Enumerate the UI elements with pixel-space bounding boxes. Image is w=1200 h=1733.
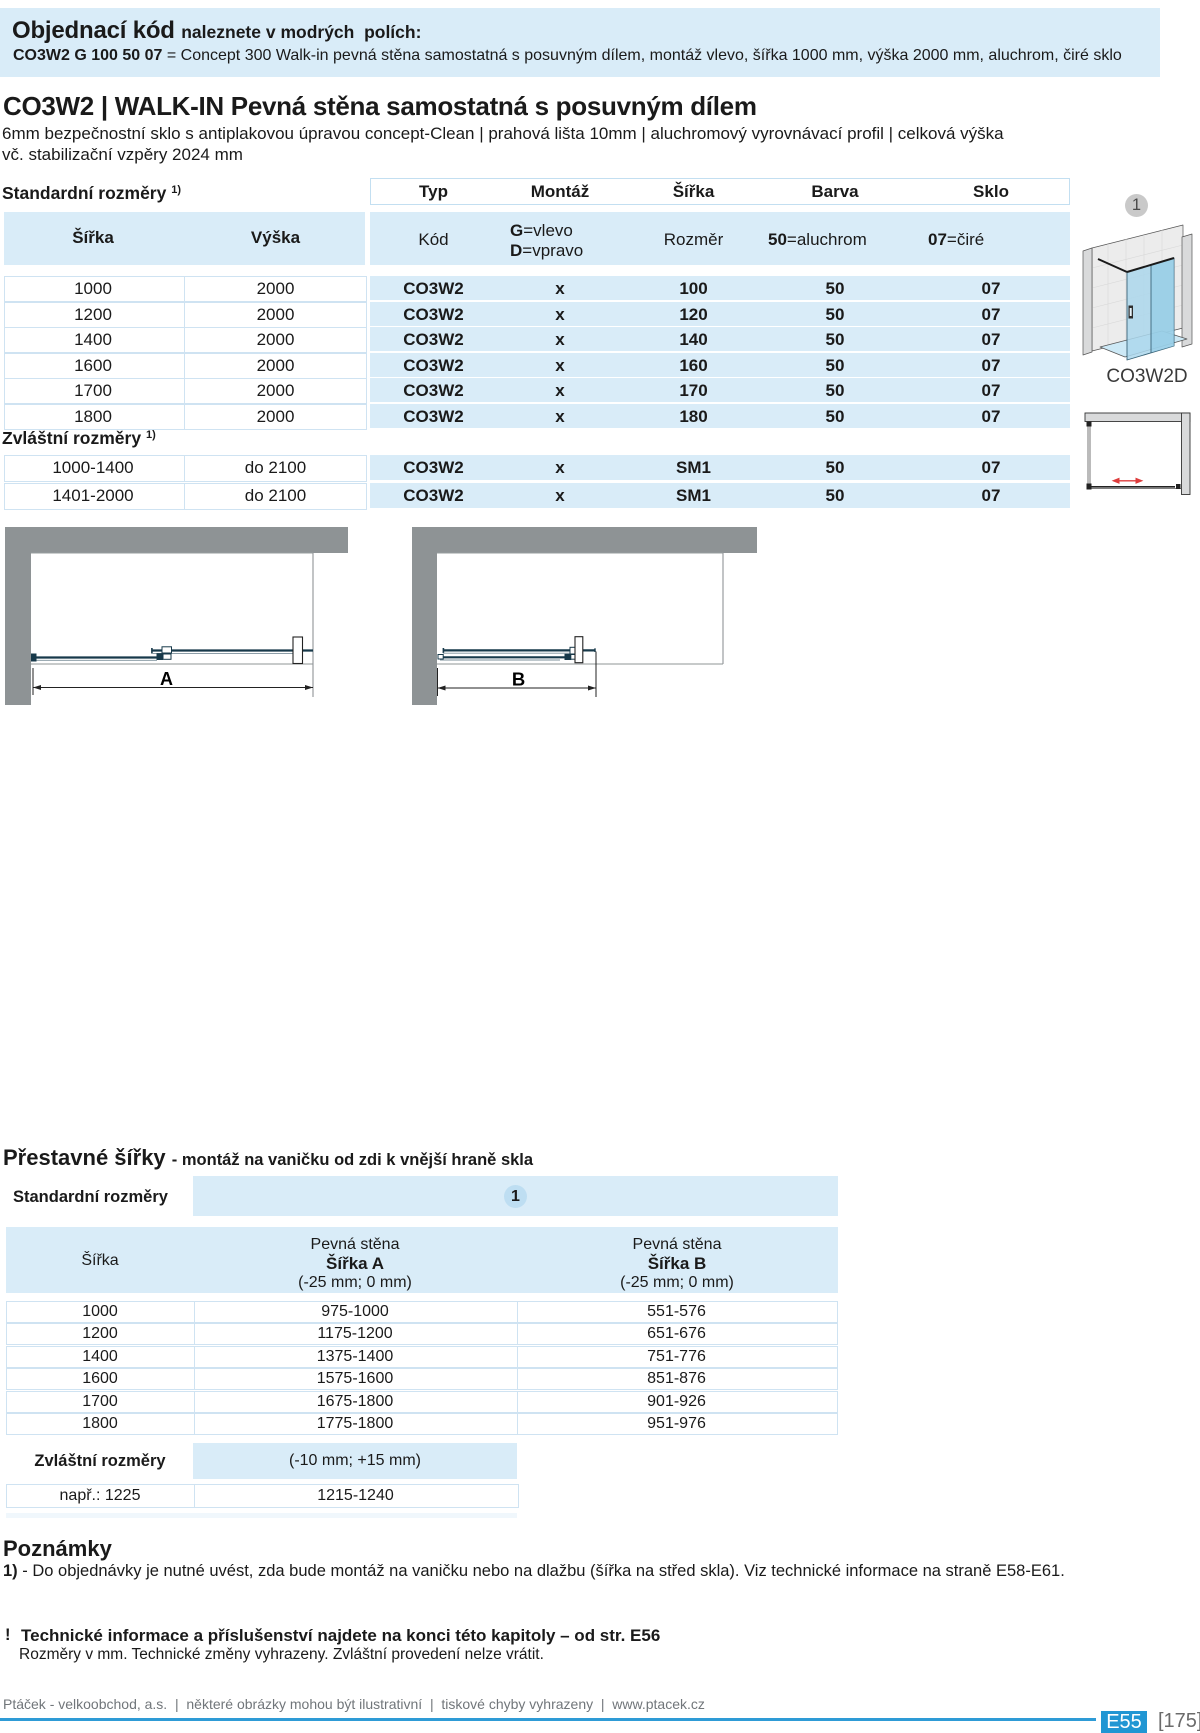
svg-text:B: B (512, 669, 525, 690)
svg-text:A: A (160, 669, 173, 689)
